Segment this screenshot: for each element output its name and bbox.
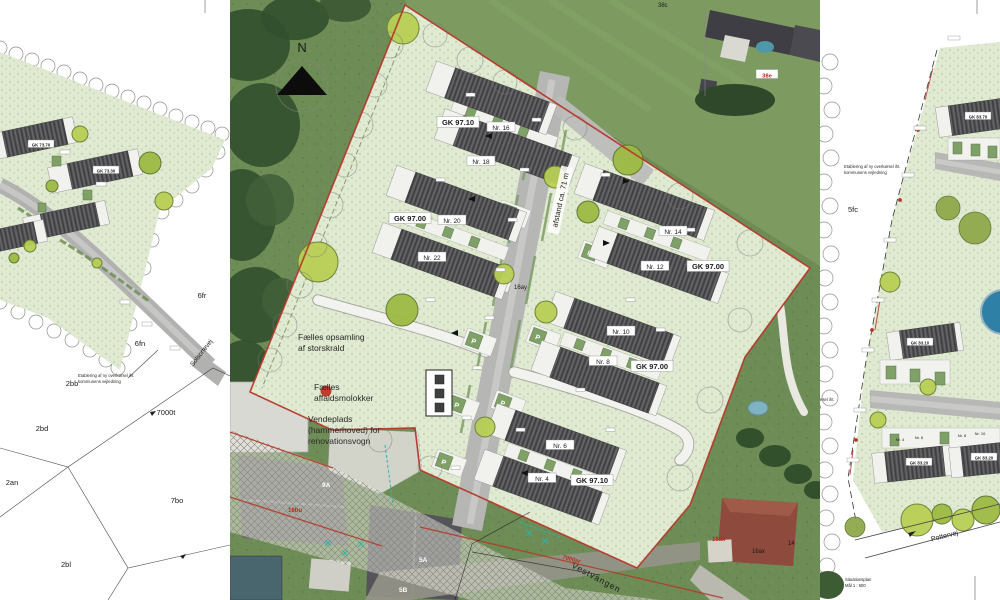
house-number-chip-14: Nr. 14 — [659, 226, 687, 236]
svg-text:Nr. 8: Nr. 8 — [596, 359, 610, 366]
svg-text:GK 83.70: GK 83.70 — [969, 115, 988, 120]
right-plan-panel: GK 83.70 GK 83.10 GK 83.20 GK 83.20 Nr. … — [820, 0, 1000, 600]
svg-text:Etablering af ny overkørsel ih: Etablering af ny overkørsel iht. — [78, 373, 135, 378]
roof-label-5a: 5A — [419, 557, 428, 564]
gk-level-chip-left-1: GK 73.70 — [28, 140, 54, 148]
house-number-chip-18: Nr. 18 — [467, 156, 495, 166]
parcel-label-2bd: 2bd — [36, 424, 49, 433]
svg-text:38e: 38e — [762, 74, 772, 80]
svg-text:Fælles: Fælles — [314, 382, 340, 392]
svg-text:Etablering af ny overkørsel ih: Etablering af ny overkørsel iht. — [820, 397, 835, 402]
gk-level-chip-r4: GK 83.20 — [971, 453, 997, 461]
parcel-label-14: 14 — [788, 541, 795, 547]
gk-level-chip-mid: GK 97.00 — [631, 361, 673, 372]
parcel-label-16ay: 16ay — [514, 285, 527, 291]
house-number-chip-6: Nr. 6 — [546, 440, 574, 450]
gk-level-chip-r1: GK 83.70 — [965, 112, 991, 120]
svg-text:Nr. 6: Nr. 6 — [553, 443, 567, 450]
svg-text:GK 83.20: GK 83.20 — [910, 461, 929, 466]
left-plan-panel: GK 73.70 GK 73.30 6fr 6fn 2bb 7000t 2bd … — [0, 0, 230, 600]
svg-text:Nr. 20: Nr. 20 — [443, 218, 461, 225]
svg-text:Etablering af ny overkørsel ih: Etablering af ny overkørsel iht. — [844, 164, 901, 169]
gk-level-chip-r2: GK 83.10 — [907, 338, 933, 346]
house-number-chip-4: Nr. 4 — [528, 473, 556, 483]
right-house-nr8: Nr. 8 — [958, 433, 967, 438]
north-label: N — [297, 40, 306, 55]
svg-text:GK 97.10: GK 97.10 — [576, 476, 608, 485]
svg-text:renovationsvogn: renovationsvogn — [308, 436, 371, 446]
parcel-label-2an: 2an — [6, 478, 19, 487]
house-number-chip-12: Nr. 12 — [641, 261, 669, 271]
svg-text:GK 73.70: GK 73.70 — [32, 143, 51, 148]
parcel-label-38e: 38e — [756, 70, 778, 80]
roof-label-9a: 9A — [322, 482, 331, 489]
situational-plan-screenshot: GK 73.70 GK 73.30 6fr 6fn 2bb 7000t 2bd … — [0, 0, 1000, 600]
right-house-nr10: Nr. 10 — [975, 431, 986, 436]
svg-text:Nr. 18: Nr. 18 — [472, 159, 490, 166]
parcel-label-6fr: 6fr — [198, 291, 207, 300]
roof-label-5b: 5B — [399, 587, 408, 594]
parcel-label-16bu: 16bu — [288, 508, 302, 514]
gk-level-chip-south: GK 97.10 — [571, 475, 613, 486]
svg-text:kommunens vejledning: kommunens vejledning — [78, 379, 122, 384]
drawing-scale: Mål 1 : 500 — [845, 583, 866, 588]
parcel-label-38c: 38c — [658, 3, 668, 9]
gk-level-chip-east: GK 97.00 — [687, 261, 729, 272]
house-number-chip-8: Nr. 8 — [589, 356, 617, 366]
parcel-label-7bo: 7bo — [171, 496, 184, 505]
svg-text:GK 83.20: GK 83.20 — [975, 456, 994, 461]
svg-text:af storskrald: af storskrald — [298, 343, 345, 353]
drawing-title: Situationsplan — [845, 577, 872, 582]
parcel-label-16ax-black: 16ax — [752, 549, 765, 555]
svg-text:Fælles opsamling: Fælles opsamling — [298, 332, 365, 342]
house-number-chip-16: Nr. 16 — [487, 122, 515, 132]
svg-text:GK 73.30: GK 73.30 — [97, 169, 116, 174]
svg-text:Nr. 4: Nr. 4 — [535, 476, 549, 483]
house-number-chip-20: Nr. 20 — [438, 215, 466, 225]
parcel-label-6fn: 6fn — [135, 339, 145, 348]
svg-text:GK 97.00: GK 97.00 — [692, 262, 724, 271]
gk-level-chip-west: GK 97.00 — [389, 213, 431, 224]
right-house-nr4: Nr. 4 — [896, 437, 905, 442]
house-number-chip-22: Nr. 22 — [418, 252, 446, 262]
svg-text:Nr. 12: Nr. 12 — [646, 264, 664, 271]
svg-text:Nr. 14: Nr. 14 — [664, 229, 682, 236]
gk-level-chip-r3: GK 83.20 — [906, 458, 932, 466]
parcel-label-16ax-red: 16ax — [712, 537, 726, 543]
parcel-label-2bb: 2bb — [66, 379, 79, 388]
svg-text:GK 97.10: GK 97.10 — [442, 118, 474, 127]
svg-text:Nr. 22: Nr. 22 — [423, 255, 441, 262]
parcel-label-7000t: 7000t — [157, 408, 177, 417]
gk-level-chip-top: GK 97.10 — [437, 117, 479, 128]
svg-text:Nr. 16: Nr. 16 — [492, 125, 510, 132]
house-number-chip-10: Nr. 10 — [607, 326, 635, 336]
svg-text:GK 97.00: GK 97.00 — [394, 214, 426, 223]
svg-text:GK 97.00: GK 97.00 — [636, 362, 668, 371]
svg-text:affaldsmolokker: affaldsmolokker — [314, 393, 374, 403]
aerial-site-plan-panel: P P P P P P P P P P — [230, 0, 820, 600]
gk-level-chip-left-2: GK 73.30 — [93, 166, 119, 174]
svg-text:Nr. 10: Nr. 10 — [612, 329, 630, 336]
parcel-label-2bl: 2bl — [61, 560, 71, 569]
svg-text:GK 83.10: GK 83.10 — [911, 341, 930, 346]
waste-molok-station — [426, 370, 452, 416]
svg-text:Vendeplads: Vendeplads — [308, 414, 352, 424]
right-house-nr6: Nr. 6 — [915, 435, 924, 440]
parcel-label-5fc: 5fc — [848, 205, 858, 214]
svg-text:kommunens vejledning: kommunens vejledning — [844, 170, 888, 175]
svg-text:(hammerhoved) for: (hammerhoved) for — [308, 425, 380, 435]
